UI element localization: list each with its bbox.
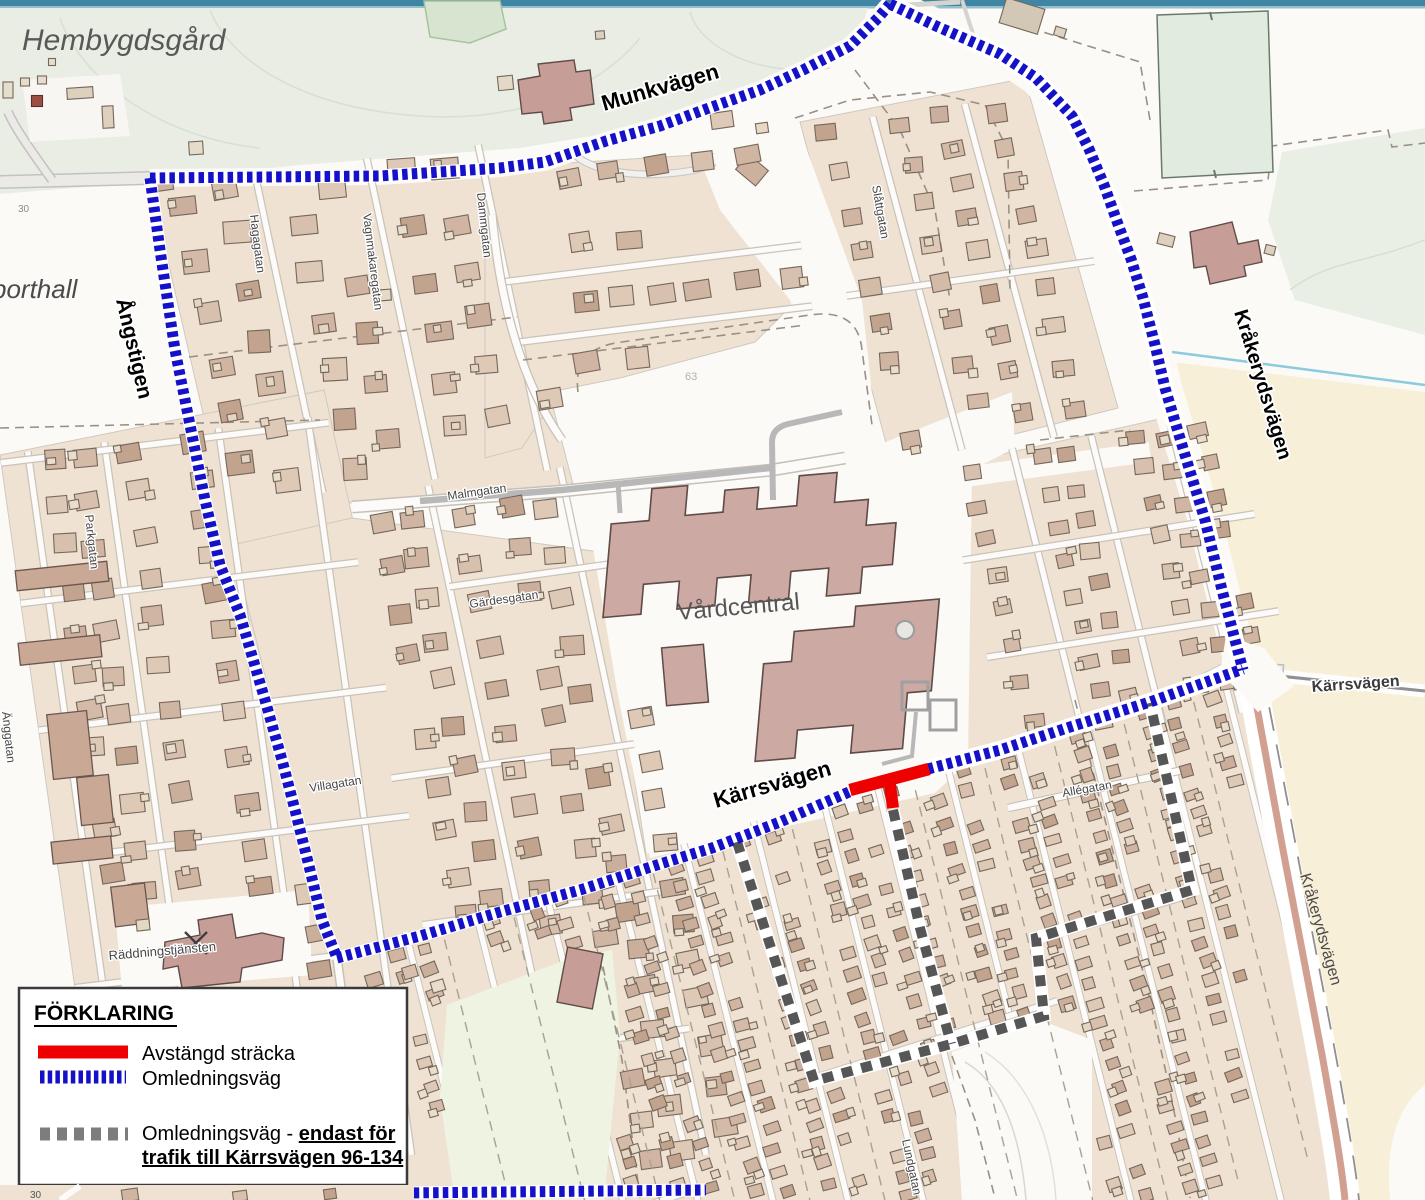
svg-text:Avstängd sträcka: Avstängd sträcka [142,1043,296,1065]
svg-text:63: 63 [685,371,697,383]
svg-text:Hembygdsgård: Hembygdsgård [22,24,227,57]
svg-text:trafik till Kärrsvägen 96-134: trafik till Kärrsvägen 96-134 [142,1147,404,1169]
svg-text:30: 30 [30,1190,42,1200]
svg-text:Omledningsväg - endast för: Omledningsväg - endast för [142,1123,396,1145]
svg-text:Omledningsväg: Omledningsväg [142,1068,281,1090]
svg-text:30: 30 [18,204,30,215]
svg-text:FÖRKLARING: FÖRKLARING [34,1002,174,1025]
svg-text:porthall: porthall [0,274,78,304]
